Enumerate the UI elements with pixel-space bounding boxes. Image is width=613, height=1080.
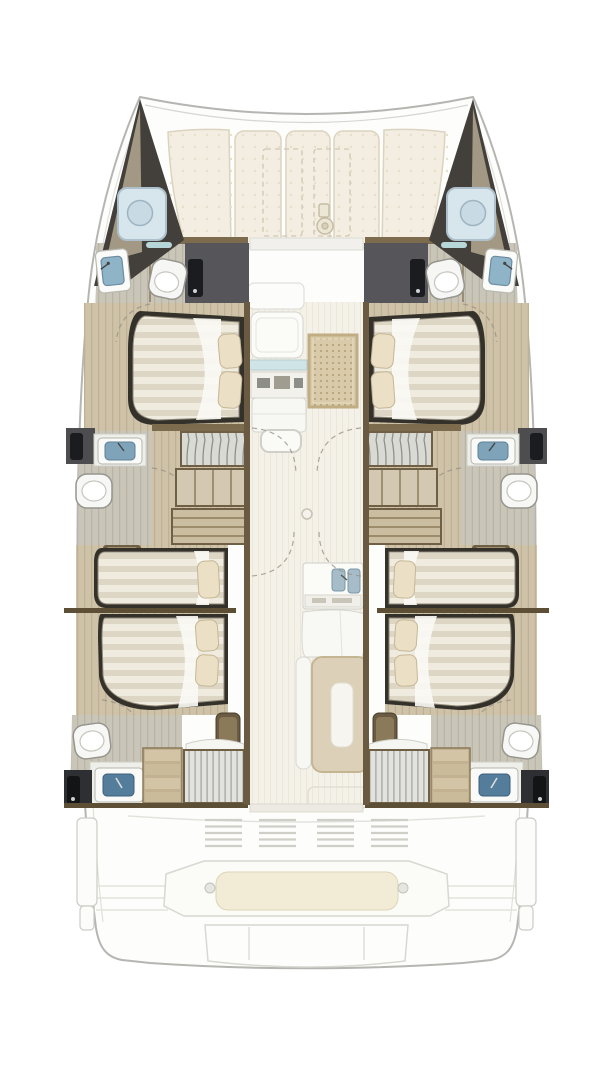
- area-rug: [309, 335, 357, 407]
- grab-knob: [398, 883, 408, 893]
- glass-band: [249, 360, 307, 370]
- aft-door-threshold: [250, 804, 363, 812]
- island-bench: [296, 657, 311, 769]
- coachroof-front-band: [250, 238, 363, 250]
- utensil-tray: [312, 598, 326, 603]
- forward-console: [248, 283, 307, 452]
- island-inlay: [331, 683, 353, 747]
- stern-bench: [164, 861, 449, 916]
- galley-sofa: [302, 610, 365, 657]
- storage-tray: [261, 430, 301, 452]
- grab-knob: [205, 883, 215, 893]
- floor-hatch: [302, 509, 312, 519]
- bench-cushion: [216, 872, 398, 910]
- galley-sink: [348, 569, 360, 593]
- foredeck-cushions: [160, 128, 450, 253]
- cushion-texture: [160, 128, 450, 253]
- nav-console: [251, 372, 307, 398]
- swim-platform: [205, 925, 408, 967]
- console-top-panel: [248, 283, 304, 309]
- utensil-tray: [332, 598, 352, 603]
- galley: [296, 563, 368, 772]
- floor-plan-canvas: [0, 0, 613, 1080]
- storage-cabinet: [252, 398, 306, 432]
